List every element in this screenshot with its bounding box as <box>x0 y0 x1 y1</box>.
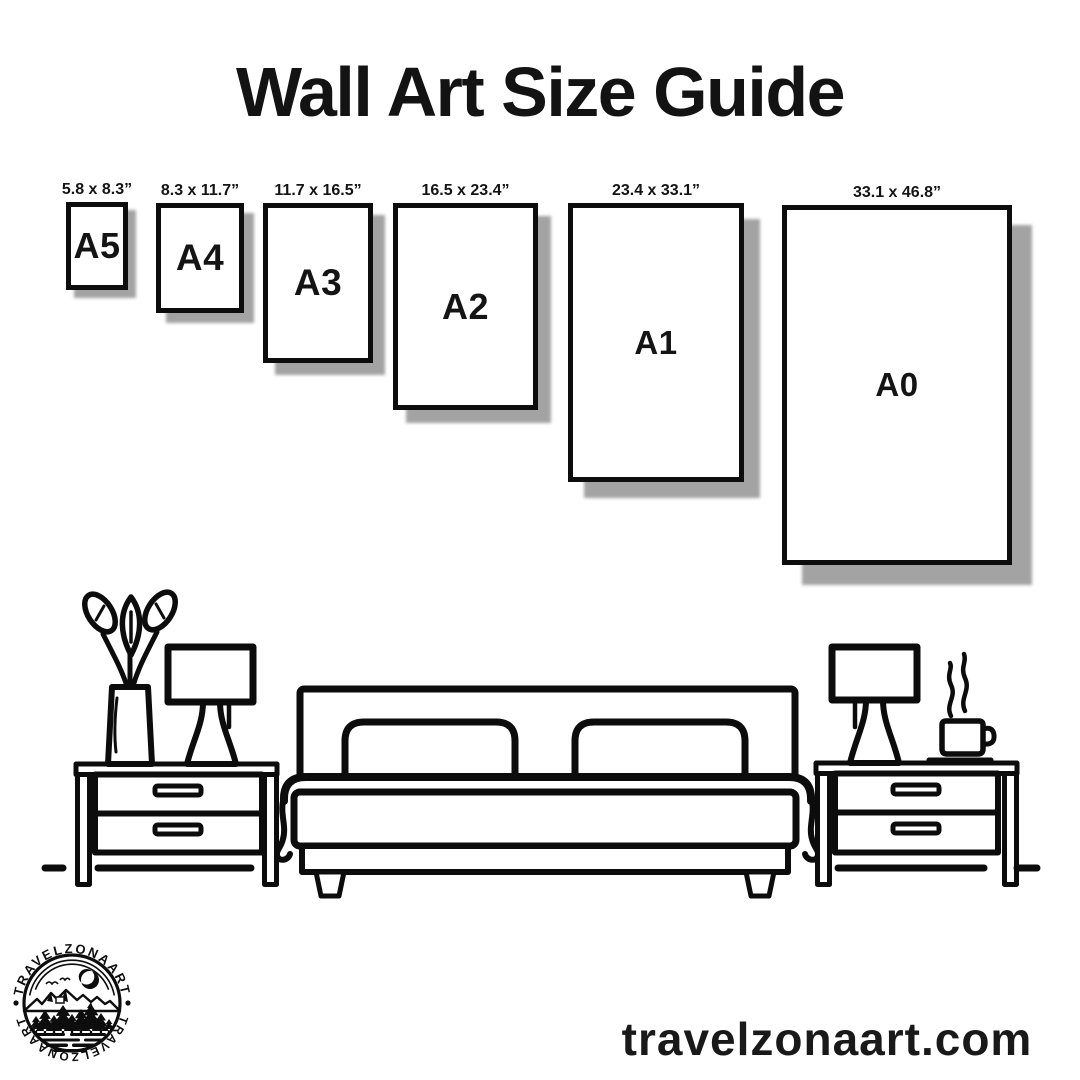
logo-mountains <box>24 990 120 1011</box>
bed-pillow-left <box>345 722 515 781</box>
nightstand-left-post-b <box>265 775 277 885</box>
nightstand-left-post-a <box>78 775 90 885</box>
website-url: travelzonaart.com <box>574 1012 1080 1066</box>
nightstand-right-post-a <box>818 774 830 885</box>
lamp-right-shade <box>832 647 917 700</box>
bed-pillow-right <box>575 722 745 781</box>
bed-leg-right <box>746 872 774 896</box>
brand-logo: TRAVELZONAART TRAVELZONAART <box>11 941 134 1064</box>
bedroom-scene-illustration: TRAVELZONAART TRAVELZONAART <box>0 0 1080 1080</box>
steam-icon <box>963 654 967 711</box>
nightstand-right-handle-top <box>893 785 939 794</box>
logo-brand-text-top: TRAVELZONAART <box>11 941 134 997</box>
lamp-right-stand <box>850 700 899 763</box>
steam-icon <box>949 663 953 716</box>
logo-separator-dot <box>125 1000 130 1005</box>
nightstand-right-handle-bottom <box>893 824 939 833</box>
bed-leg-left <box>316 872 344 896</box>
coffee-cup <box>929 654 994 760</box>
bed-base <box>302 846 788 872</box>
bed-illustration <box>277 689 818 896</box>
bird-icon <box>46 982 58 984</box>
nightstand-left-handle-top <box>155 786 201 795</box>
lamp-left <box>168 647 253 764</box>
logo-cabin <box>56 997 64 1003</box>
logo-separator-dot <box>13 1000 18 1005</box>
bird-icon <box>60 978 70 980</box>
lamp-left-shade <box>168 647 253 702</box>
cup-body <box>942 721 983 754</box>
nightstand-left-handle-bottom <box>155 825 201 834</box>
lamp-right <box>832 647 917 763</box>
bed-duvet <box>294 792 796 846</box>
